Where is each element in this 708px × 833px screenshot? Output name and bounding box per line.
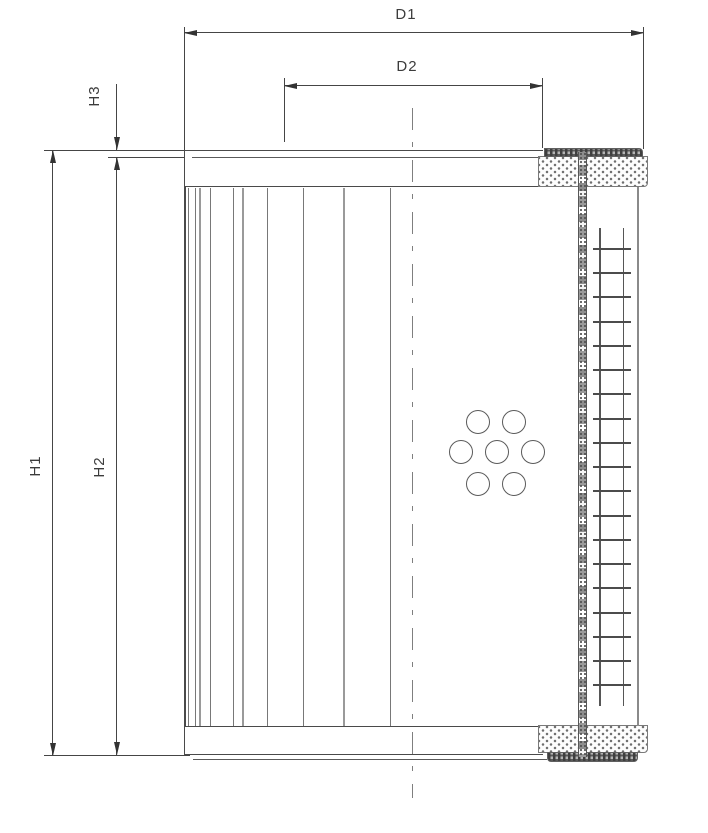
label-h3: H3: [86, 74, 104, 118]
arrow-h2-bottom: [114, 742, 120, 755]
spring-rung: [593, 418, 631, 420]
spring-rung: [593, 612, 631, 614]
spring-rung: [593, 369, 631, 371]
arrow-h3-upper: [114, 137, 120, 150]
perforation-hole: [502, 472, 526, 496]
pleat-line: [210, 188, 211, 726]
spring-rung: [593, 660, 631, 662]
pleat-line: [303, 188, 304, 726]
label-d2: D2: [385, 58, 429, 76]
arrow-d2-left: [284, 83, 297, 89]
pleat-line: [199, 188, 201, 726]
spring-rung: [593, 442, 631, 444]
ext-line-h2-top: [108, 157, 192, 158]
spring-rung: [593, 587, 631, 589]
arrow-d2-right: [530, 83, 543, 89]
top-cap-seam-line: [192, 157, 543, 158]
pleat-line: [242, 188, 244, 726]
perforation-hole: [502, 410, 526, 434]
spring-rung: [593, 539, 631, 541]
perforation-hole: [521, 440, 545, 464]
label-d1: D1: [384, 6, 428, 24]
centerline: [412, 108, 413, 798]
top-knurl-band: [544, 148, 643, 157]
bottom-knurl-band: [547, 752, 638, 762]
label-h2: H2: [91, 445, 109, 489]
pleat-line: [343, 188, 345, 726]
arrow-h1-bottom: [50, 743, 56, 756]
spring-rung: [593, 490, 631, 492]
dim-line-d2: [284, 85, 543, 86]
pleat-line: [267, 188, 268, 726]
spring-rung: [593, 563, 631, 565]
label-h1: H1: [27, 444, 45, 488]
technical-drawing-canvas: D1 D2 H1 H2 H3: [0, 0, 708, 833]
spring-rung: [593, 393, 631, 395]
perforation-hole: [449, 440, 473, 464]
arrow-d1-left: [184, 30, 197, 36]
bottom-end-cap: [184, 726, 543, 755]
pleat-line: [233, 188, 234, 726]
pleat-line: [188, 188, 189, 726]
perforation-hole: [485, 440, 509, 464]
outer-shell-right-edge: [637, 187, 639, 726]
pleat-line: [390, 188, 391, 726]
spring-rung: [593, 684, 631, 686]
arrow-h1-top: [50, 150, 56, 163]
dim-line-h1: [52, 150, 53, 756]
spring-rung: [593, 248, 631, 250]
spring-rung: [593, 296, 631, 298]
bottom-cap-seam-line: [193, 759, 547, 760]
spring-rung: [593, 636, 631, 638]
ext-line-h1-top: [44, 150, 184, 151]
perforation-hole: [466, 472, 490, 496]
arrow-d1-right: [631, 30, 644, 36]
perforation-hole: [466, 410, 490, 434]
spring-rung: [593, 321, 631, 323]
spring-rung: [593, 515, 631, 517]
dim-line-d1: [184, 32, 644, 33]
top-gasket-section: [538, 156, 648, 187]
ext-line-d1-right: [643, 27, 644, 149]
bottom-gasket-section: [538, 725, 648, 753]
dim-line-h2: [116, 157, 117, 755]
pleat-line: [195, 188, 196, 726]
ext-line-d1-left: [184, 27, 185, 150]
spring-rung: [593, 345, 631, 347]
ext-line-h1-bottom: [44, 755, 190, 756]
inner-core-tube: [578, 152, 587, 757]
body-left-edge: [184, 187, 186, 726]
spring-rung: [593, 272, 631, 274]
ext-line-d2-right: [542, 78, 543, 148]
spring-rung: [593, 466, 631, 468]
arrow-h2-top: [114, 157, 120, 170]
